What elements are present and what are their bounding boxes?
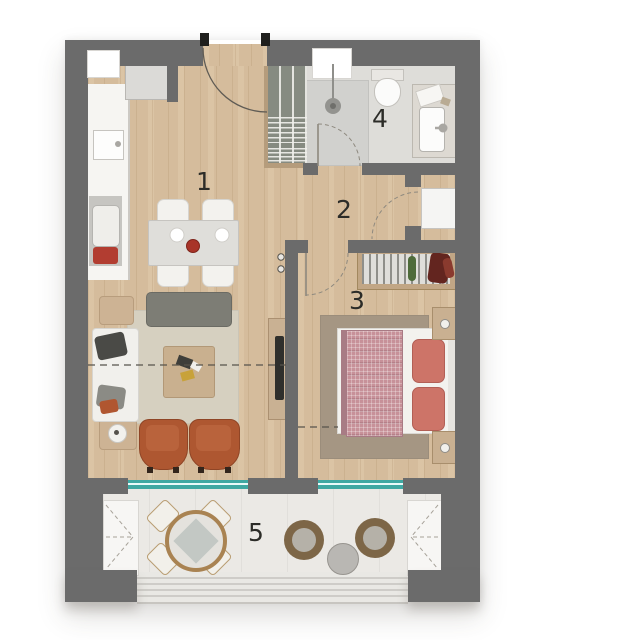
armchair-orange [189,419,240,470]
bathroom-window [312,48,352,79]
sliding-door-living-balcony [128,480,248,489]
balcony-glass-panel-left [103,500,139,576]
nightstand-knob [440,443,450,453]
entrance-threshold [203,44,267,66]
refrigerator [125,62,169,100]
tv [275,336,284,400]
armchair-foot [225,467,231,473]
side-table [99,296,134,325]
wall-left [65,40,88,485]
entrance-door-jamb [261,33,270,46]
plant-dot [114,430,119,435]
room-label-living: 1 [196,169,212,194]
wall-stub-kitchen [167,40,178,102]
kitchen-window [87,50,120,78]
vanity-sink [419,107,445,152]
balcony-side-table [327,543,359,575]
wall-bottom-b [248,478,318,494]
bed-pillow [412,339,445,383]
washing-machine [421,188,457,229]
bed-blanket [346,330,403,437]
nightstand [432,307,457,340]
balcony-post-right [441,478,480,578]
bed-pillow [412,387,445,431]
entry-closet-shelves [268,117,307,143]
armchair-foot [173,467,179,473]
armchair-cushion [146,425,179,451]
dining-table [148,220,239,266]
sliding-door-bedroom-balcony [318,480,403,489]
balcony-post-left [65,478,103,578]
toilet-bowl [374,78,401,107]
balcony-lounge-chair [355,518,395,558]
wall-bathroom-bottom-left [303,163,318,175]
balcony-table-top [173,518,218,563]
wall-bedroom-top-left [285,240,308,253]
room-label-bathroom: 4 [372,106,388,131]
nightstand [432,431,457,464]
kitchen-red-appliance [93,247,118,264]
sofa-gray [146,292,232,327]
wall-bedroom-top-right [348,240,455,253]
entry-closet-shelves [268,148,307,163]
bed-headboard [448,330,455,431]
balcony-foot-left [65,570,137,602]
wall-niche-bottom [405,226,421,240]
lounge-cushion [363,526,387,550]
wall-niche-top [405,173,421,187]
armchair-foot [198,467,204,473]
armchair-cushion [196,425,231,451]
room-label-hallway: 2 [336,197,352,222]
room-label-bedroom: 3 [349,288,365,313]
balcony-lounge-chair [284,520,324,560]
shower-area [303,80,369,166]
balcony-foot-right [408,570,480,602]
wardrobe-plant [408,256,416,281]
armchair-orange [139,419,188,470]
lounge-cushion [292,528,316,552]
kitchen-sink [93,130,124,160]
floor-plan-canvas: 1 2 3 4 5 [0,0,640,640]
kitchen-cooktop [92,205,120,247]
wall-bedroom-vertical [285,240,298,480]
nightstand-knob [440,319,450,329]
room-label-balcony: 5 [248,520,264,545]
balcony-glass-panel-right [407,500,443,576]
armchair-foot [147,467,153,473]
wall-top-right [267,40,480,66]
balcony-round-table [165,510,227,572]
balcony-railing-strip [137,572,408,604]
wall-right [455,40,480,485]
entrance-door-jamb [200,33,209,46]
